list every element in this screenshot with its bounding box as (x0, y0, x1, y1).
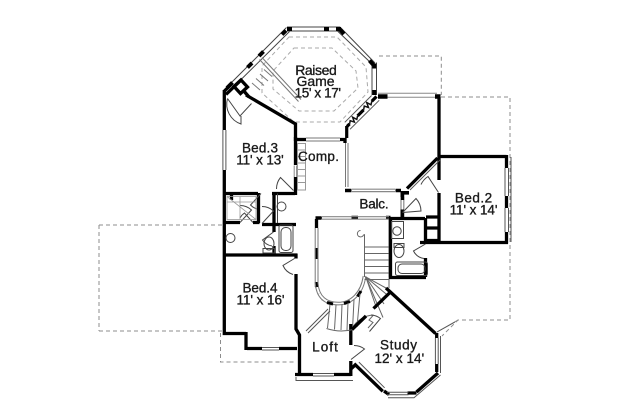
svg-text:Balc.: Balc. (359, 197, 388, 212)
svg-text:15' x 17': 15' x 17' (295, 86, 341, 101)
svg-text:11' x 13': 11' x 13' (236, 153, 283, 168)
svg-text:11' x 16': 11' x 16' (237, 293, 285, 308)
svg-text:Loft: Loft (312, 340, 338, 355)
svg-text:11' x 14': 11' x 14' (450, 203, 498, 218)
svg-text:12' x 14': 12' x 14' (374, 351, 424, 366)
svg-text:Comp.: Comp. (298, 149, 339, 164)
